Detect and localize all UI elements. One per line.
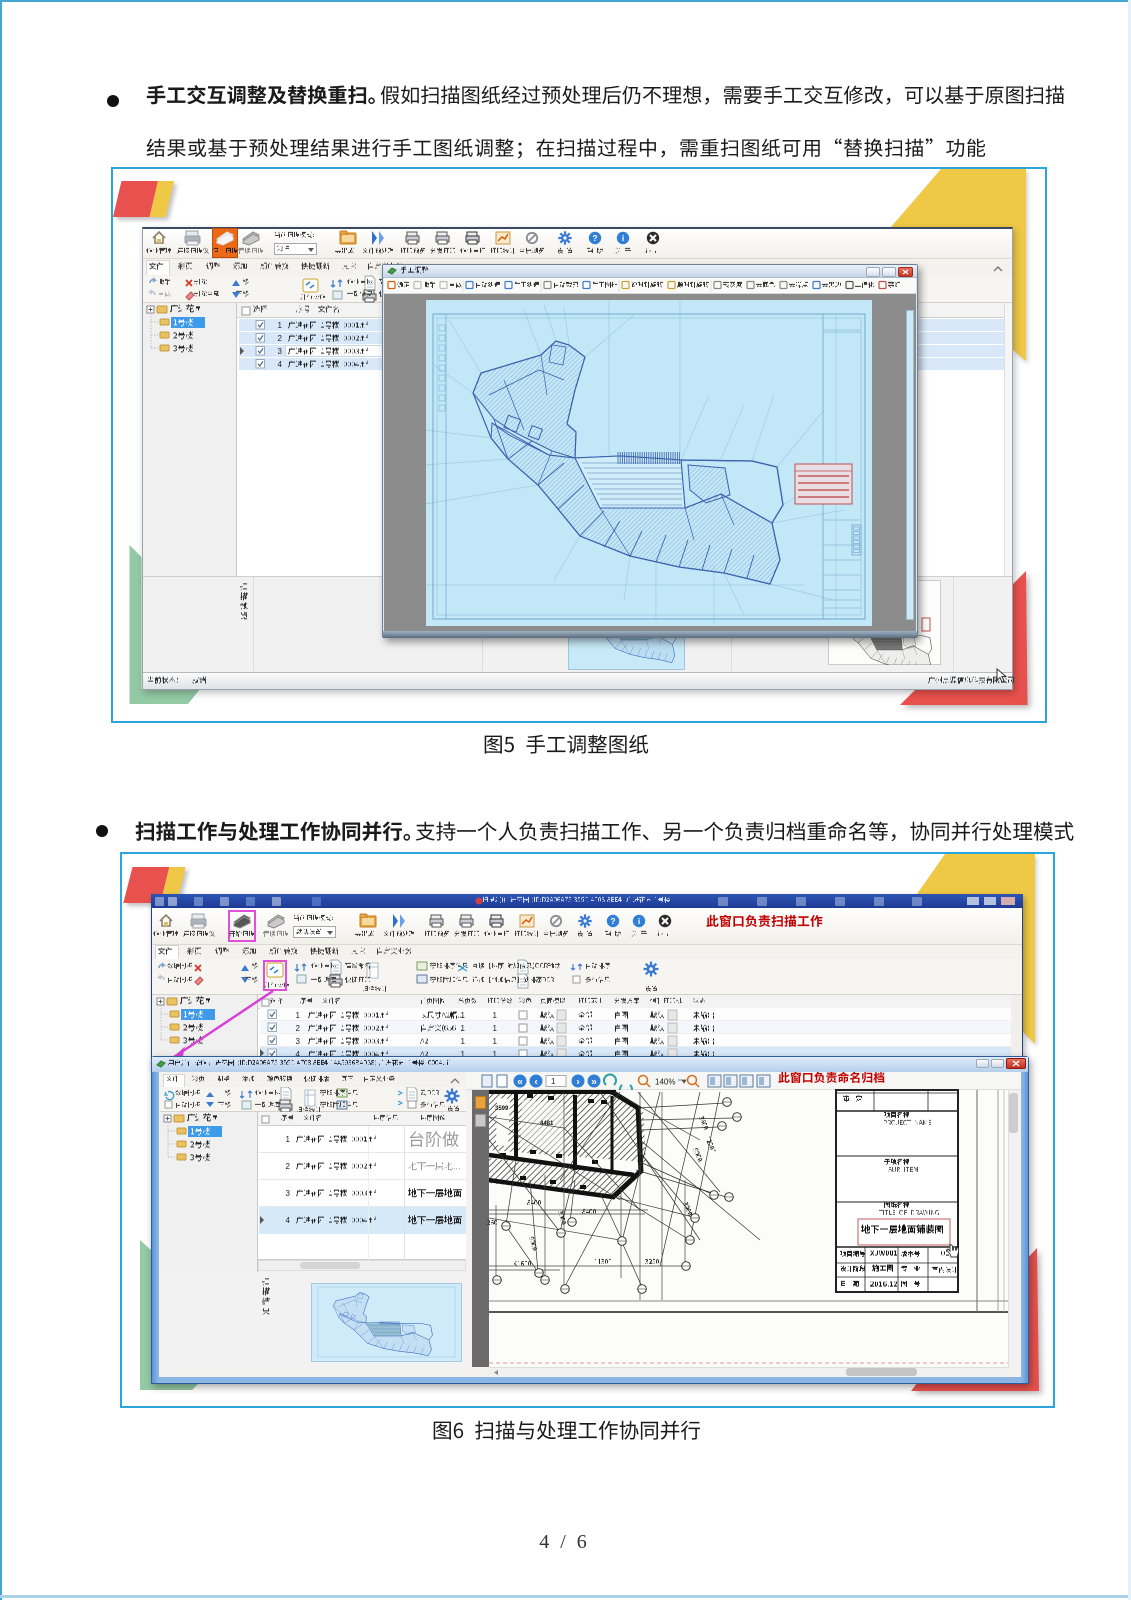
- svg-text:»: »: [591, 1077, 597, 1088]
- svg-text:i: i: [638, 916, 640, 926]
- svg-text:«: «: [517, 1077, 523, 1088]
- svg-text:‹: ‹: [534, 1077, 537, 1088]
- svg-text:3599: 3599: [495, 1106, 509, 1112]
- svg-text:i: i: [622, 233, 624, 243]
- svg-text:?: ?: [610, 916, 615, 926]
- svg-text:?: ?: [592, 233, 597, 243]
- svg-text:140%: 140%: [655, 1078, 675, 1087]
- svg-text:1: 1: [551, 1077, 556, 1086]
- svg-text:›: ›: [576, 1077, 579, 1088]
